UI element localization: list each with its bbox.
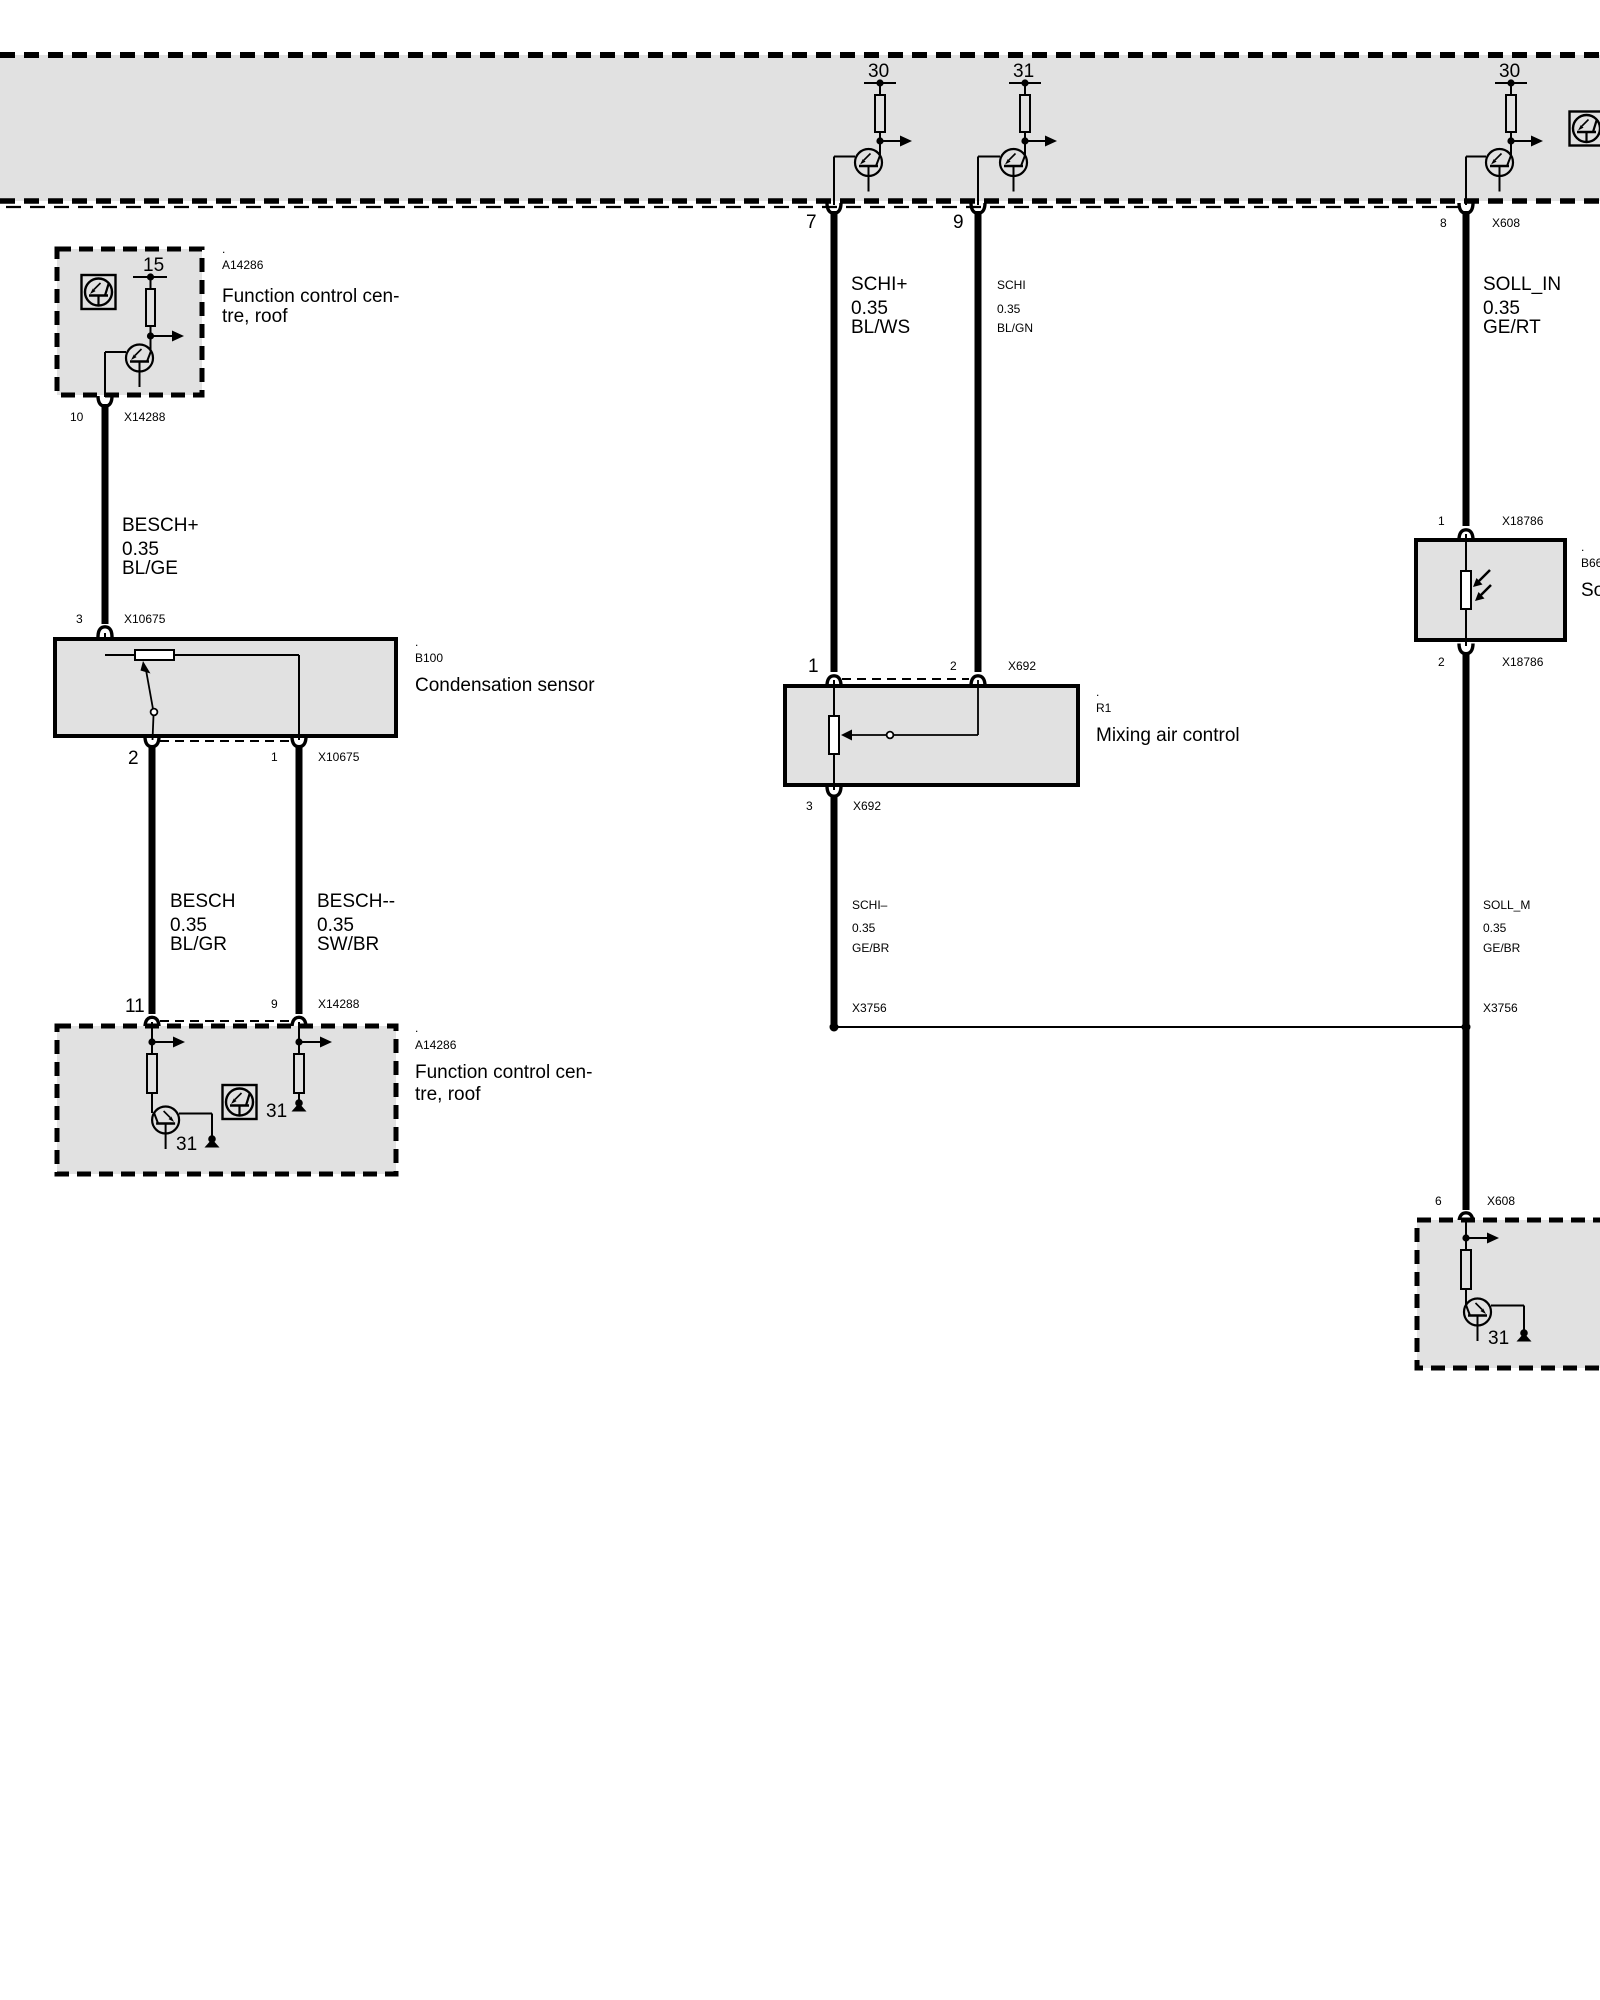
svg-text:A14286: A14286 (415, 1038, 457, 1052)
svg-text:31: 31 (1488, 1328, 1509, 1349)
svg-text:0.35: 0.35 (170, 915, 207, 936)
svg-text:.: . (1581, 540, 1584, 554)
svg-text:GE/RT: GE/RT (1483, 317, 1541, 338)
svg-text:B668: B668 (1581, 556, 1600, 570)
svg-text:BL/GR: BL/GR (170, 934, 227, 955)
svg-text:0.35: 0.35 (1483, 921, 1507, 935)
svg-text:1: 1 (808, 656, 819, 677)
svg-text:X608: X608 (1492, 216, 1520, 230)
svg-text:0.35: 0.35 (997, 302, 1021, 316)
svg-text:31: 31 (1013, 61, 1034, 82)
svg-text:BL/WS: BL/WS (851, 317, 910, 338)
svg-text:2: 2 (1438, 655, 1445, 669)
svg-text:7: 7 (806, 212, 817, 233)
svg-text:0.35: 0.35 (122, 539, 159, 560)
svg-text:3: 3 (806, 799, 813, 813)
svg-text:10: 10 (70, 410, 84, 424)
svg-text:B100: B100 (415, 651, 443, 665)
svg-text:31: 31 (176, 1134, 197, 1155)
svg-text:SCHI+: SCHI+ (851, 274, 908, 295)
svg-text:.: . (1096, 685, 1099, 699)
svg-text:BL/GN: BL/GN (997, 321, 1033, 335)
svg-text:3: 3 (76, 612, 83, 626)
svg-text:BL/GE: BL/GE (122, 558, 178, 579)
svg-text:Function control cen-: Function control cen- (222, 286, 399, 307)
svg-text:.: . (222, 242, 225, 256)
svg-text:X18786: X18786 (1502, 514, 1544, 528)
svg-text:X10675: X10675 (124, 612, 166, 626)
svg-text:1: 1 (1438, 514, 1445, 528)
svg-text:X10675: X10675 (318, 750, 360, 764)
svg-text:Condensation sensor: Condensation sensor (415, 675, 595, 696)
svg-text:SOLL_M: SOLL_M (1483, 898, 1530, 912)
svg-text:SCHI–: SCHI– (852, 898, 888, 912)
svg-text:30: 30 (1499, 61, 1520, 82)
svg-text:SCHI: SCHI (997, 278, 1026, 292)
svg-text:X14288: X14288 (318, 997, 360, 1011)
svg-text:X18786: X18786 (1502, 655, 1544, 669)
svg-text:tre, roof: tre, roof (415, 1084, 481, 1105)
svg-text:.: . (415, 635, 418, 649)
svg-text:X14288: X14288 (124, 410, 166, 424)
svg-text:SW/BR: SW/BR (317, 934, 379, 955)
svg-text:BESCH--: BESCH-- (317, 891, 395, 912)
svg-text:15: 15 (143, 255, 164, 276)
svg-text:GE/BR: GE/BR (852, 941, 890, 955)
svg-text:31: 31 (266, 1101, 287, 1122)
svg-text:30: 30 (868, 61, 889, 82)
svg-text:2: 2 (128, 748, 139, 769)
svg-text:1: 1 (271, 750, 278, 764)
svg-text:Mixing air control: Mixing air control (1096, 725, 1240, 746)
svg-text:2: 2 (950, 659, 957, 673)
svg-text:A14286: A14286 (222, 258, 264, 272)
svg-text:8: 8 (1440, 216, 1447, 230)
svg-text:0.35: 0.35 (1483, 298, 1520, 319)
svg-text:R1: R1 (1096, 701, 1112, 715)
svg-text:SOLL_IN: SOLL_IN (1483, 274, 1561, 295)
svg-text:X692: X692 (1008, 659, 1036, 673)
svg-text:Solar sensor: Solar sensor (1581, 580, 1600, 601)
svg-text:0.35: 0.35 (851, 298, 888, 319)
svg-text:9: 9 (953, 212, 964, 233)
svg-text:11: 11 (125, 996, 145, 1017)
svg-text:X3756: X3756 (1483, 1001, 1518, 1015)
svg-text:9: 9 (271, 997, 278, 1011)
svg-text:GE/BR: GE/BR (1483, 941, 1521, 955)
svg-text:Function control cen-: Function control cen- (415, 1062, 592, 1083)
svg-text:BESCH+: BESCH+ (122, 515, 199, 536)
svg-text:.: . (415, 1021, 418, 1035)
svg-text:6: 6 (1435, 1194, 1442, 1208)
svg-text:tre, roof: tre, roof (222, 306, 288, 327)
svg-text:X692: X692 (853, 799, 881, 813)
svg-text:BESCH: BESCH (170, 891, 235, 912)
svg-text:0.35: 0.35 (852, 921, 876, 935)
svg-text:0.35: 0.35 (317, 915, 354, 936)
svg-text:X608: X608 (1487, 1194, 1515, 1208)
svg-text:X3756: X3756 (852, 1001, 887, 1015)
